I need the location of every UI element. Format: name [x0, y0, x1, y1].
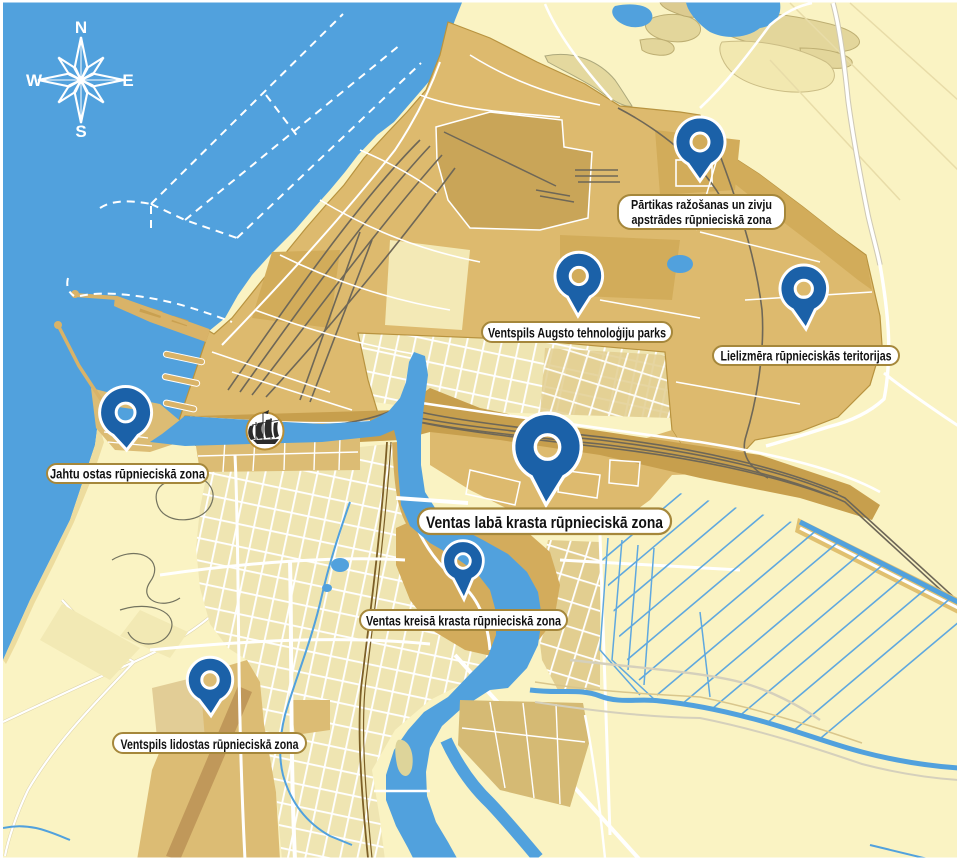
svg-text:Ventspils Augsto tehnoloģiju p: Ventspils Augsto tehnoloģiju parks	[488, 325, 666, 340]
svg-text:S: S	[75, 122, 86, 141]
svg-text:apstrādes rūpnieciskā zona: apstrādes rūpnieciskā zona	[632, 212, 773, 227]
svg-text:N: N	[75, 18, 87, 37]
svg-text:Ventas labā krasta rūpnieciskā: Ventas labā krasta rūpnieciskā zona	[426, 513, 663, 532]
svg-text:Jahtu ostas rūpnieciskā zona: Jahtu ostas rūpnieciskā zona	[50, 467, 205, 482]
svg-text:Lielizmēra rūpnieciskās terito: Lielizmēra rūpnieciskās teritorijas	[721, 349, 892, 364]
svg-text:Ventspils lidostas rūpnieciskā: Ventspils lidostas rūpnieciskā zona	[121, 737, 299, 752]
svg-text:W: W	[26, 71, 43, 90]
svg-text:Ventas kreisā krasta rūpniecis: Ventas kreisā krasta rūpnieciskā zona	[366, 614, 561, 629]
svg-text:Pārtikas ražošanas un zivju: Pārtikas ražošanas un zivju	[631, 197, 772, 212]
svg-text:E: E	[122, 71, 133, 90]
